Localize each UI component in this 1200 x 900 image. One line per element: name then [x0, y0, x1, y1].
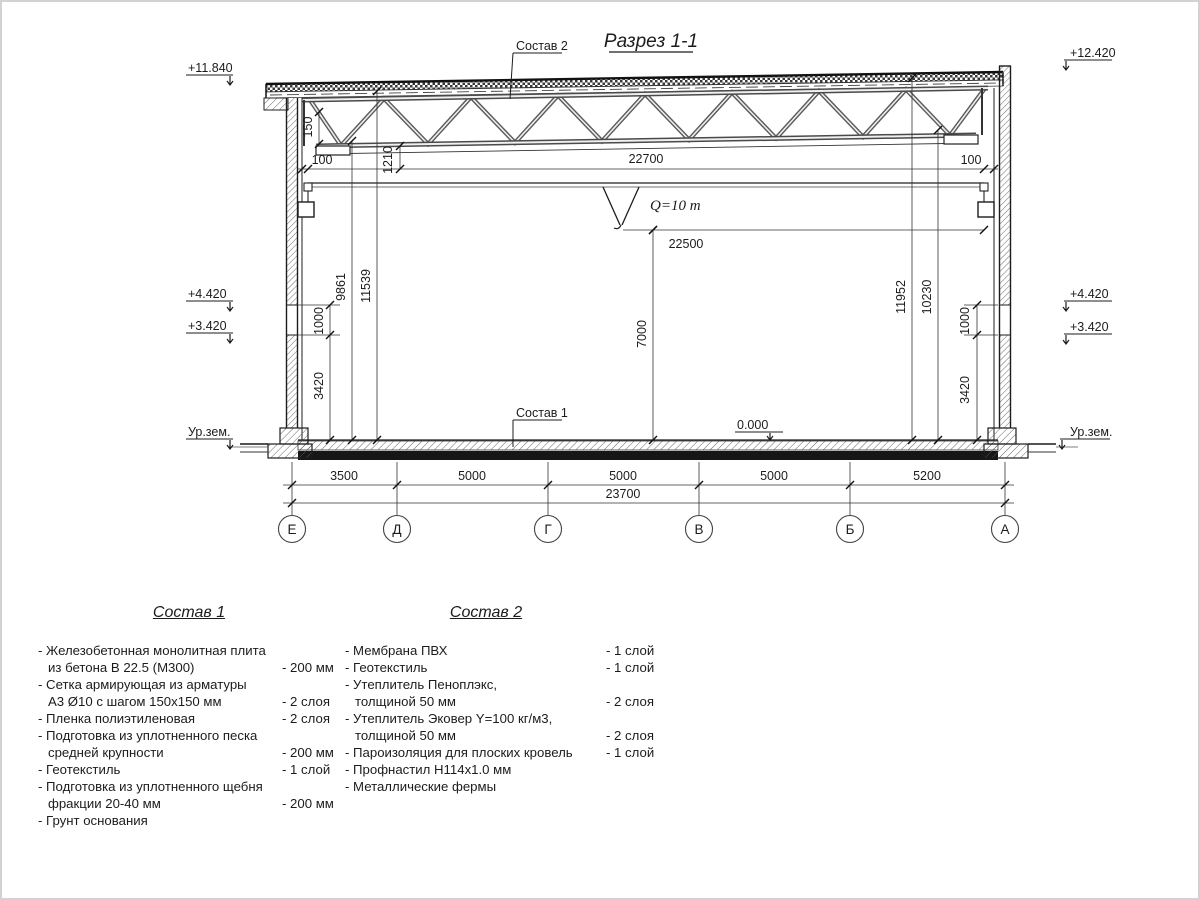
dim-bay-1: 3500 — [330, 469, 358, 483]
item-text: - Подготовка из уплотненного щебня — [38, 778, 282, 795]
list-item: - Грунт основания — [38, 812, 340, 829]
list-item: - Железобетонная монолитная плита — [38, 642, 340, 659]
foundation-right — [984, 428, 1078, 458]
mark-arrow — [1059, 440, 1065, 449]
sostav1-heading: Состав 1 — [38, 604, 340, 622]
list-item: - Подготовка из уплотненного песка — [38, 727, 340, 744]
list-item: - Геотекстиль- 1 слой — [38, 761, 340, 778]
list-item: - Подготовка из уплотненного щебня — [38, 778, 340, 795]
mark-right-ground: Ур.зем. — [1070, 425, 1112, 439]
list-item: - Пленка полиэтиленовая- 2 слоя — [38, 710, 340, 727]
crane-rail-right — [980, 183, 988, 191]
dim-bay-4: 5000 — [760, 469, 788, 483]
item-text: - Утеплитель Пеноплэкс, — [345, 676, 606, 693]
item-text: - Мембрана ПВХ — [345, 642, 606, 659]
item-value — [606, 778, 663, 795]
item-value: - 1 слой — [606, 659, 663, 676]
axis-label-b: Б — [846, 522, 855, 537]
crane-console-left — [298, 202, 314, 217]
sostav2-list: Состав 2 - Мембрана ПВХ- 1 слой - Геотек… — [345, 604, 663, 795]
list-item: - Мембрана ПВХ- 1 слой — [345, 642, 663, 659]
item-value: - 2 слоя — [282, 693, 340, 710]
item-value: - 2 слоя — [606, 727, 663, 744]
mark-left-roof: +11.840 — [188, 61, 233, 75]
mark-floor-zero: 0.000 — [735, 418, 783, 440]
item-text: фракции 20-40 мм — [38, 795, 282, 812]
dim-bay-5: 5200 — [913, 469, 941, 483]
axis-label-a: А — [1000, 522, 1009, 537]
mark-zero-label: 0.000 — [737, 418, 768, 432]
item-text: - Подготовка из уплотненного песка — [38, 727, 282, 744]
list-item: фракции 20-40 мм- 200 мм — [38, 795, 340, 812]
dim-right-11952: 11952 — [894, 280, 908, 314]
section-drawing: Разрез 1-1 — [0, 0, 1200, 560]
dim-left-1000: 1000 — [312, 307, 326, 335]
item-text: из бетона В 22.5 (М300) — [38, 659, 282, 676]
crane-bridge — [298, 183, 994, 217]
dim-gap-left: 100 — [312, 153, 333, 167]
dim-left-11539: 11539 — [359, 269, 373, 303]
wall-right — [994, 66, 1011, 440]
dim-right-10230: 10230 — [920, 280, 934, 315]
dim-gap-right: 100 — [961, 153, 982, 167]
mark-left-crane-top: +4.420 — [188, 287, 227, 301]
list-item: толщиной 50 мм- 2 слоя — [345, 727, 663, 744]
callout-sostav2-label: Состав 2 — [516, 39, 568, 53]
item-text: - Сетка армирующая из арматуры — [38, 676, 282, 693]
drawing-sheet: Разрез 1-1 — [0, 0, 1200, 900]
item-value: - 200 мм — [282, 744, 340, 761]
mark-right-crane-top: +4.420 — [1070, 287, 1109, 301]
list-item: из бетона В 22.5 (М300)- 200 мм — [38, 659, 340, 676]
item-value — [282, 642, 340, 659]
dim-crane-span: 22500 — [669, 237, 704, 251]
mark-right-roof: +12.420 — [1070, 46, 1116, 60]
sostav2-heading: Состав 2 — [327, 604, 645, 622]
item-value: - 1 слой — [606, 744, 663, 761]
item-value: - 1 слой — [282, 761, 340, 778]
item-text: - Геотекстиль — [38, 761, 282, 778]
elevation-marks-right: +12.420 +4.420 +3.420 Ур.зем. — [1059, 46, 1116, 449]
mark-arrow — [1063, 61, 1069, 70]
item-value — [282, 727, 340, 744]
list-item: - Утеплитель Пеноплэкс, — [345, 676, 663, 693]
list-item: средней крупности- 200 мм — [38, 744, 340, 761]
item-text: - Железобетонная монолитная плита — [38, 642, 282, 659]
axis-label-v: В — [694, 522, 703, 537]
dim-bay-2: 5000 — [458, 469, 486, 483]
item-value: - 2 слоя — [282, 710, 340, 727]
elevation-marks-left: +11.840 +4.420 +3.420 Ур.зем. — [186, 61, 233, 449]
list-item: - Пароизоляция для плоских кровель- 1 сл… — [345, 744, 663, 761]
crane-rail-left — [304, 183, 312, 191]
item-value — [606, 676, 663, 693]
crane-hook: Q=10 m — [603, 187, 701, 229]
axis-label-g: Г — [544, 522, 552, 537]
crane-capacity-label: Q=10 m — [650, 198, 701, 214]
axis-bubbles: Е Д Г В Б А — [279, 516, 1019, 543]
mark-arrow — [1063, 302, 1069, 311]
mark-arrow — [227, 440, 233, 449]
dim-left-9861: 9861 — [334, 273, 348, 301]
mark-left-crane-bottom: +3.420 — [188, 319, 227, 333]
list-item: - Металлические фермы — [345, 778, 663, 795]
mark-arrow — [767, 433, 773, 440]
dim-hook-height: 7000 — [635, 226, 657, 444]
mark-arrow — [227, 302, 233, 311]
title-block: Разрез 1-1 — [604, 31, 698, 52]
list-item: - Геотекстиль- 1 слой — [345, 659, 663, 676]
dim-right-1000: 1000 — [958, 307, 972, 335]
dim-left-3420: 3420 — [312, 372, 326, 400]
mark-arrow — [1063, 335, 1069, 344]
dim-truss-150: 150 — [301, 117, 315, 138]
item-value: - 200 мм — [282, 795, 340, 812]
item-value — [606, 710, 663, 727]
item-text: - Утеплитель Эковер Y=100 кг/м3, — [345, 710, 606, 727]
dim-crane-span: 22500 — [623, 226, 988, 251]
roof-truss — [302, 88, 988, 155]
item-text: - Профнастил Н114х1.0 мм — [345, 761, 606, 778]
mark-left-ground: Ур.зем. — [188, 425, 230, 439]
sostav1-list: Состав 1 - Железобетонная монолитная пли… — [38, 604, 340, 829]
item-text: - Грунт основания — [38, 812, 282, 829]
item-value — [606, 761, 663, 778]
list-item: - Сетка армирующая из арматуры — [38, 676, 340, 693]
item-text: средней крупности — [38, 744, 282, 761]
mark-right-crane-bottom: +3.420 — [1070, 320, 1109, 334]
foundation-left — [228, 428, 312, 458]
wall-left — [286, 98, 302, 440]
axis-label-d: Д — [392, 522, 401, 537]
item-text: А3 Ø10 с шагом 150х150 мм — [38, 693, 282, 710]
callout-sostav1-label: Состав 1 — [516, 406, 568, 420]
item-text: - Пленка полиэтиленовая — [38, 710, 282, 727]
roof-edge-block — [264, 98, 288, 110]
wall-right-window-band — [1000, 305, 1010, 335]
list-item: А3 Ø10 с шагом 150х150 мм- 2 слоя — [38, 693, 340, 710]
dim-hook-height: 7000 — [635, 320, 649, 348]
dim-roof-span: 22700 — [629, 152, 664, 166]
mark-arrow — [227, 334, 233, 343]
item-value: - 200 мм — [282, 659, 340, 676]
dims-bottom: 3500 5000 5000 5000 5200 23700 — [283, 462, 1014, 515]
wall-left-window-band — [287, 305, 297, 335]
item-text: - Пароизоляция для плоских кровель — [345, 744, 606, 761]
item-text: толщиной 50 мм — [345, 727, 606, 744]
item-text: толщиной 50 мм — [345, 693, 606, 710]
dim-bay-3: 5000 — [609, 469, 637, 483]
item-text: - Геотекстиль — [345, 659, 606, 676]
item-value — [282, 778, 340, 795]
item-value: - 1 слой — [606, 642, 663, 659]
floor-slab — [298, 440, 998, 460]
floor-base-layer — [298, 451, 998, 460]
dim-total: 23700 — [606, 487, 641, 501]
dim-truss-1210: 1210 — [381, 146, 395, 174]
crane-console-right — [978, 202, 994, 217]
list-item: - Утеплитель Эковер Y=100 кг/м3, — [345, 710, 663, 727]
truss-bearing-right — [944, 135, 978, 144]
list-item: толщиной 50 мм- 2 слоя — [345, 693, 663, 710]
mark-arrow — [227, 76, 233, 85]
item-value — [282, 676, 340, 693]
dim-right-3420: 3420 — [958, 376, 972, 404]
dims-roof-span: 100 22700 100 — [298, 152, 998, 173]
item-value: - 2 слоя — [606, 693, 663, 710]
drawing-title: Разрез 1-1 — [604, 31, 698, 52]
list-item: - Профнастил Н114х1.0 мм — [345, 761, 663, 778]
item-value — [282, 812, 340, 829]
axis-label-e: Е — [287, 522, 296, 537]
item-text: - Металлические фермы — [345, 778, 606, 795]
